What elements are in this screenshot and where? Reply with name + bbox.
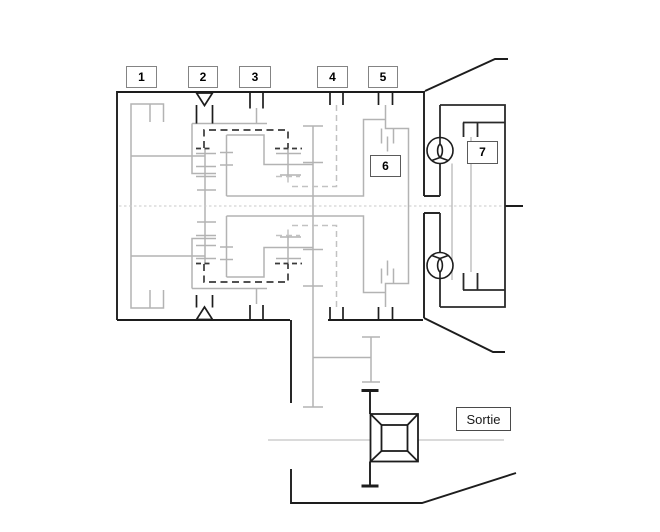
one-way-clutch-top-icon — [197, 93, 213, 124]
callout-box-6: 6 — [370, 155, 401, 177]
clutch-pack-dashed-upper — [196, 130, 302, 149]
callout-box-2: 2 — [188, 66, 218, 88]
callout-box-3: 3 — [239, 66, 271, 88]
bevel-gear-icon — [371, 414, 419, 462]
diagram-canvas: 1 2 3 4 5 6 7 Sortie — [0, 0, 660, 532]
callout-label-1: 1 — [138, 71, 145, 83]
gear-cluster-lower — [131, 206, 409, 308]
gear-cluster-upper — [131, 104, 409, 206]
callout-box-1: 1 — [126, 66, 157, 88]
callout-label-5: 5 — [380, 71, 387, 83]
output-label-text: Sortie — [467, 413, 501, 426]
callout-label-2: 2 — [200, 71, 207, 83]
callout-label-6: 6 — [382, 160, 389, 172]
electric-machine-lower-icon — [427, 253, 453, 279]
callout-box-7: 7 — [467, 141, 498, 164]
callout-label-4: 4 — [329, 71, 336, 83]
callout-box-4: 4 — [317, 66, 348, 88]
output-label-box: Sortie — [456, 407, 511, 431]
one-way-clutch-bottom-icon — [197, 295, 213, 320]
callout-label-7: 7 — [479, 146, 486, 158]
electric-machine-upper-icon — [427, 138, 453, 164]
callout-box-5: 5 — [368, 66, 398, 88]
clutch-pack-dashed-lower — [196, 264, 302, 283]
callout-label-3: 3 — [252, 71, 259, 83]
